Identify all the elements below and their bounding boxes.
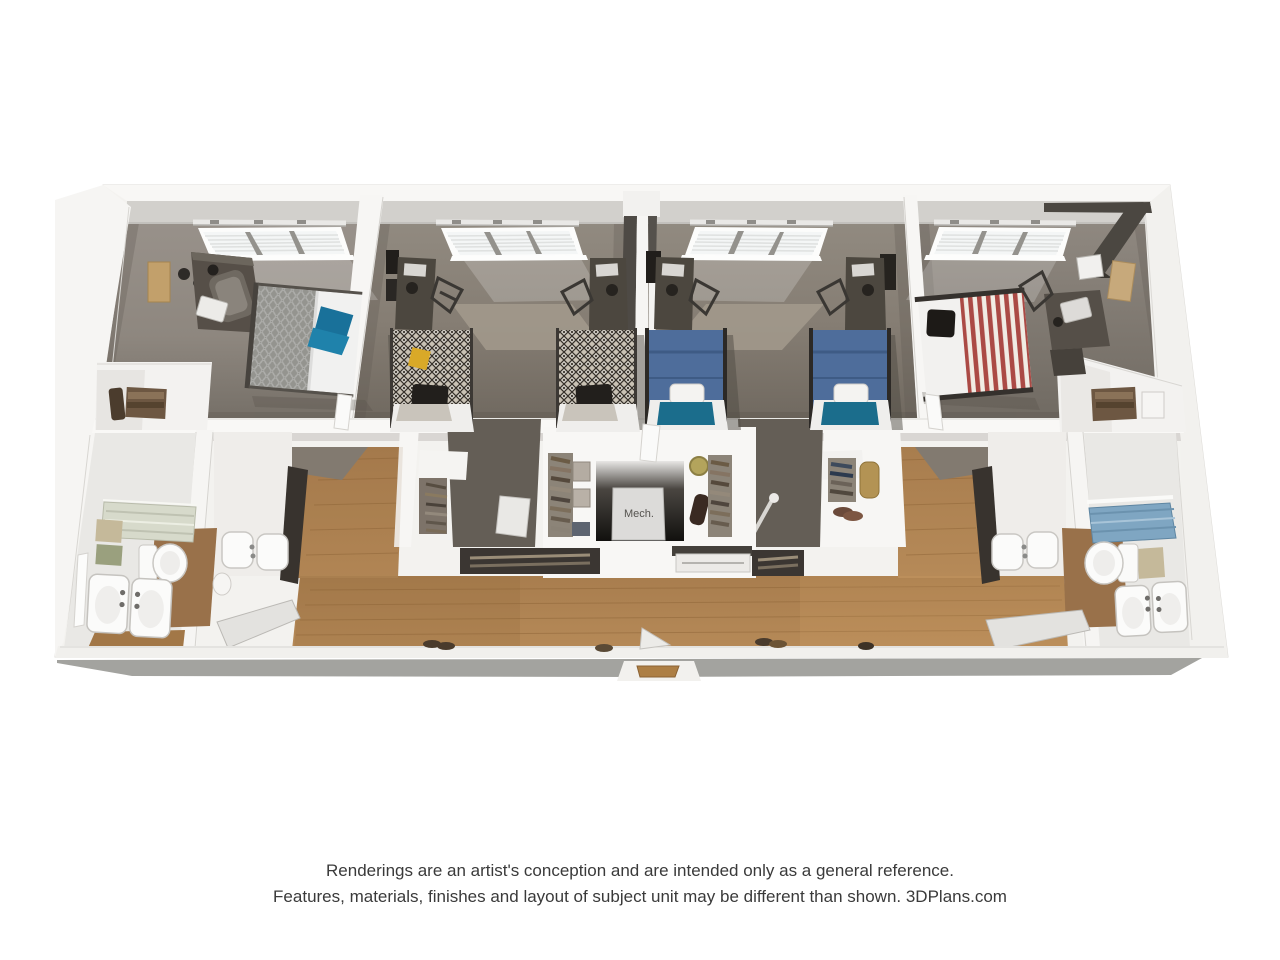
svg-text:Mech.: Mech. bbox=[624, 508, 654, 520]
